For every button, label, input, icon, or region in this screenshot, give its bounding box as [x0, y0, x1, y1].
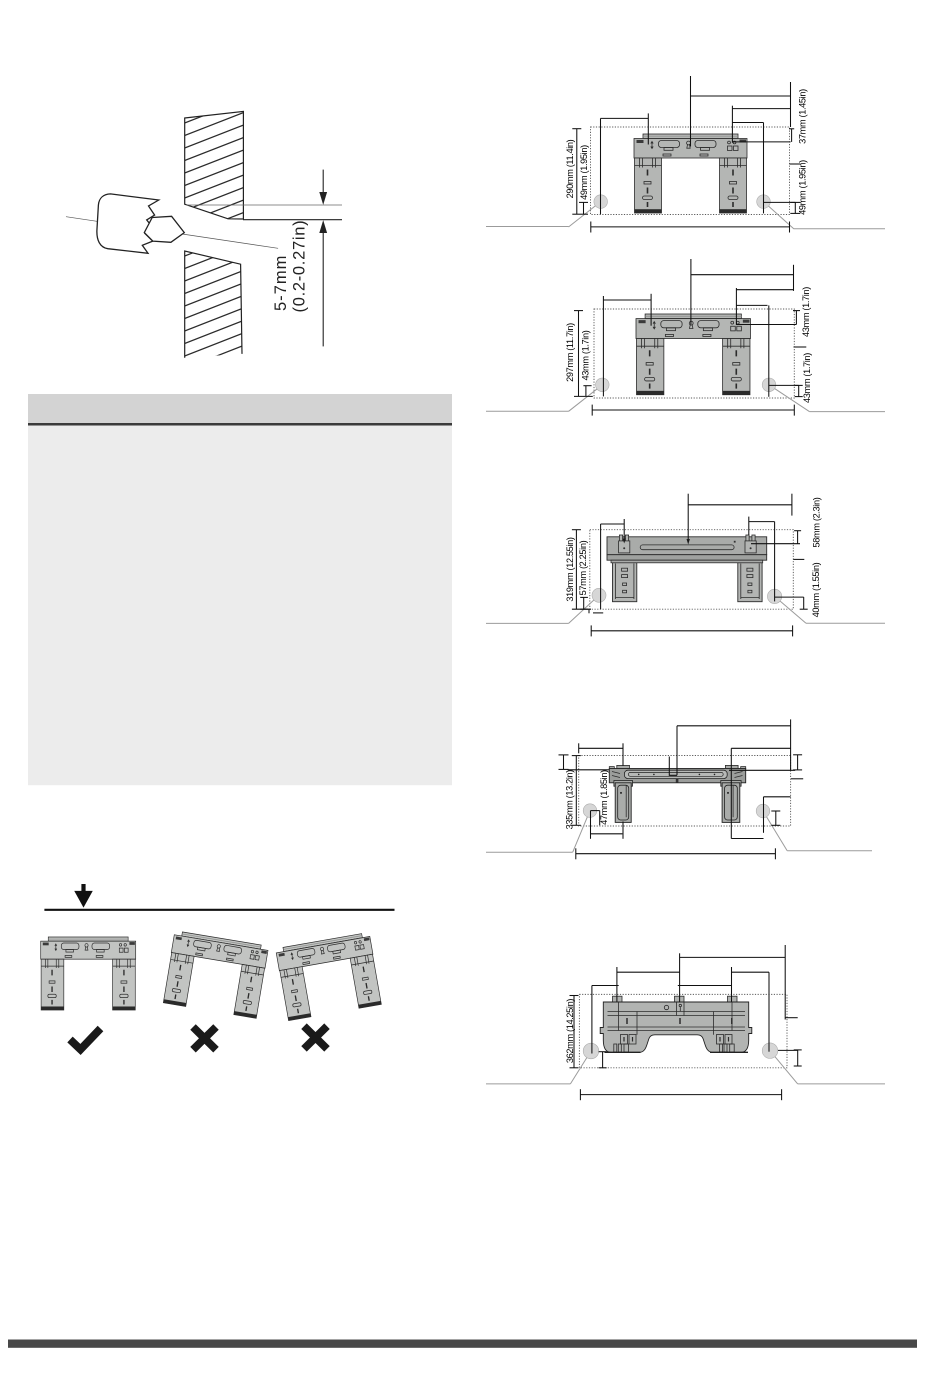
svg-text:40mm (1.55in): 40mm (1.55in)	[811, 562, 821, 617]
svg-text:290mm (11.4in): 290mm (11.4in)	[565, 139, 575, 198]
svg-text:362mm (14.25in): 362mm (14.25in)	[565, 999, 575, 1063]
svg-text:(0.2-0.27in): (0.2-0.27in)	[291, 220, 309, 313]
svg-text:47mm (1.85in): 47mm (1.85in)	[599, 770, 609, 825]
svg-text:49mm (1.95in): 49mm (1.95in)	[579, 145, 589, 200]
svg-text:37mm (1.45in): 37mm (1.45in)	[797, 89, 807, 144]
svg-text:58mm (2.3in): 58mm (2.3in)	[811, 497, 821, 547]
svg-text:43mm (1.7in): 43mm (1.7in)	[581, 330, 591, 380]
svg-text:297mm (11.7in): 297mm (11.7in)	[565, 323, 575, 382]
svg-text:57mm (2.25in): 57mm (2.25in)	[578, 540, 588, 595]
svg-text:43mm (1.7in): 43mm (1.7in)	[801, 287, 811, 337]
svg-text:5-7mm: 5-7mm	[272, 255, 290, 311]
svg-text:335mm (13.2in): 335mm (13.2in)	[564, 770, 574, 830]
svg-text:43mm (1.7in): 43mm (1.7in)	[802, 353, 812, 403]
svg-text:319mm (12.55in): 319mm (12.55in)	[565, 537, 575, 601]
svg-text:49mm (1.95in): 49mm (1.95in)	[797, 160, 807, 215]
